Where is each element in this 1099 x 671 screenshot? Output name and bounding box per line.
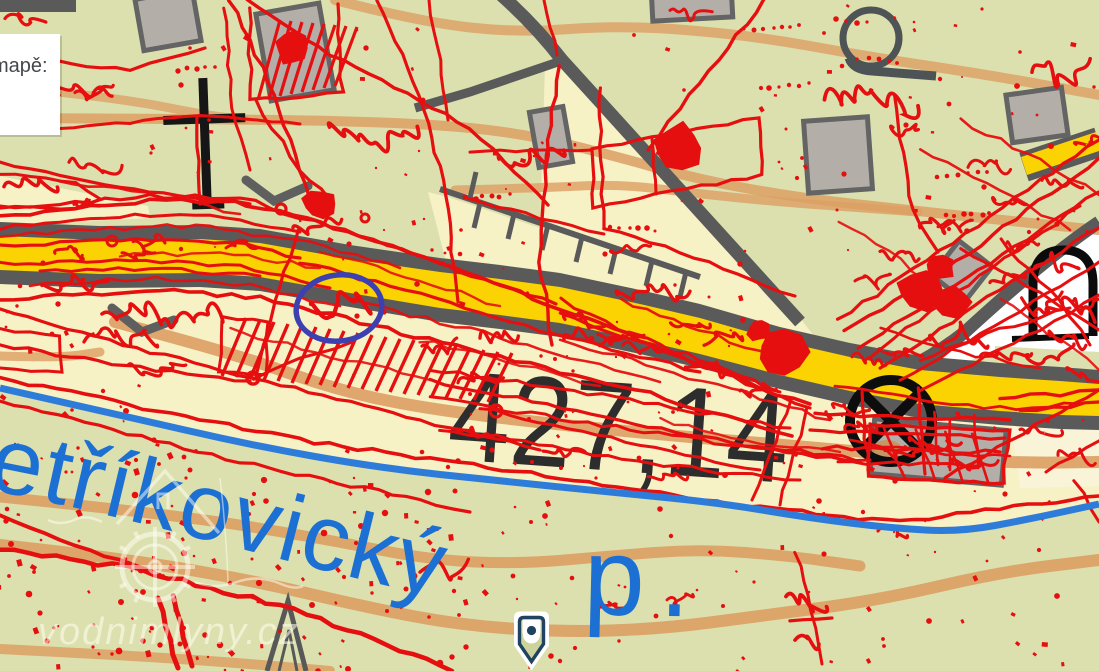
svg-text:vodnimlyny.cz: vodnimlyny.cz [38, 611, 300, 653]
svg-text:p.: p. [582, 515, 706, 641]
svg-text:mapě:: mapě: [0, 55, 48, 77]
